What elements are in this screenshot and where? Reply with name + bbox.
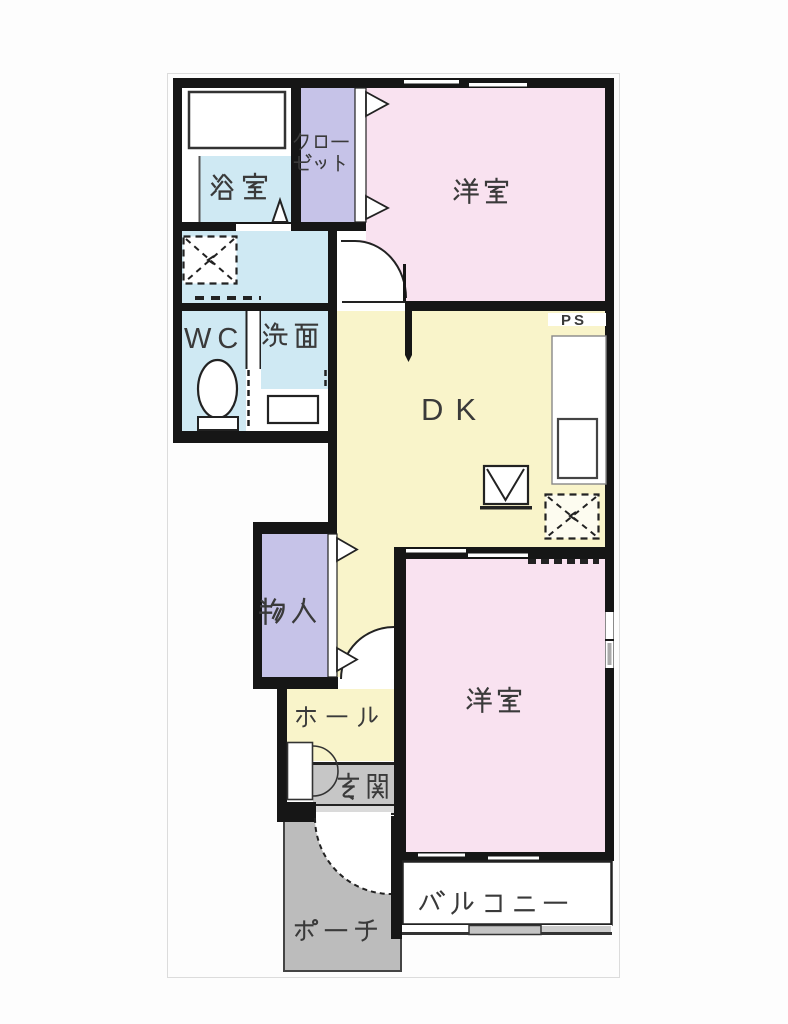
svg-text:PS: PS	[561, 312, 587, 329]
svg-text:DK: DK	[421, 392, 488, 427]
svg-text:WC: WC	[184, 323, 244, 355]
